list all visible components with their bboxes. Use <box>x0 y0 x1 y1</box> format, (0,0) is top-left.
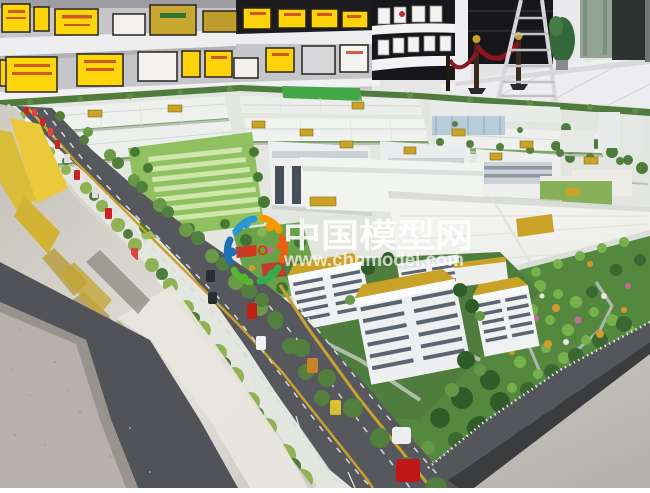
svg-text:MO: MO <box>246 242 269 258</box>
svg-text:www.chnmodel.com: www.chnmodel.com <box>283 250 464 271</box>
svg-text:中国模型网: 中国模型网 <box>283 217 473 254</box>
